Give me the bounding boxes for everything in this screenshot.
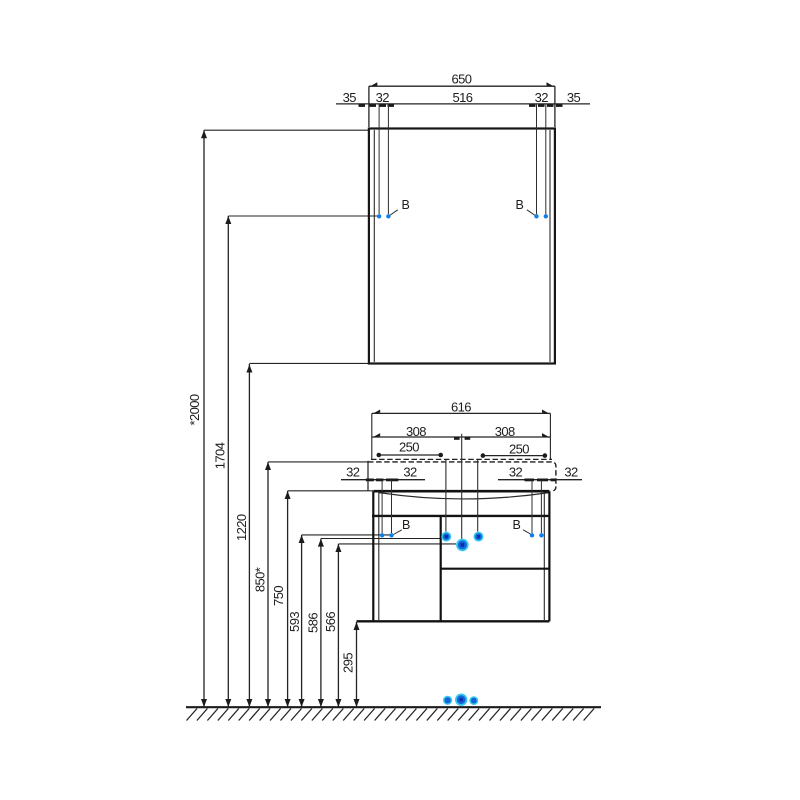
svg-text:35: 35: [343, 90, 357, 105]
svg-text:B: B: [513, 518, 521, 532]
svg-text:32: 32: [509, 465, 523, 480]
svg-text:32: 32: [564, 465, 578, 480]
svg-text:32: 32: [346, 465, 360, 480]
svg-text:850*: 850*: [253, 567, 268, 592]
svg-text:650: 650: [452, 72, 472, 87]
svg-text:616: 616: [451, 399, 471, 414]
svg-text:250: 250: [399, 440, 419, 455]
svg-text:308: 308: [495, 424, 515, 439]
svg-text:*2000: *2000: [187, 394, 202, 425]
svg-text:1704: 1704: [213, 442, 228, 469]
svg-text:B: B: [516, 198, 524, 212]
svg-text:1220: 1220: [234, 514, 249, 541]
svg-text:750: 750: [271, 586, 286, 606]
svg-text:586: 586: [306, 613, 321, 633]
svg-text:295: 295: [341, 653, 356, 673]
svg-text:32: 32: [535, 90, 549, 105]
svg-text:250: 250: [509, 441, 529, 456]
svg-text:516: 516: [452, 90, 472, 105]
svg-text:308: 308: [406, 424, 426, 439]
svg-text:35: 35: [567, 90, 581, 105]
svg-text:B: B: [402, 198, 410, 212]
svg-text:B: B: [402, 518, 410, 532]
svg-text:32: 32: [376, 90, 390, 105]
svg-text:593: 593: [287, 612, 302, 632]
svg-text:566: 566: [323, 612, 338, 632]
svg-text:32: 32: [403, 465, 417, 480]
